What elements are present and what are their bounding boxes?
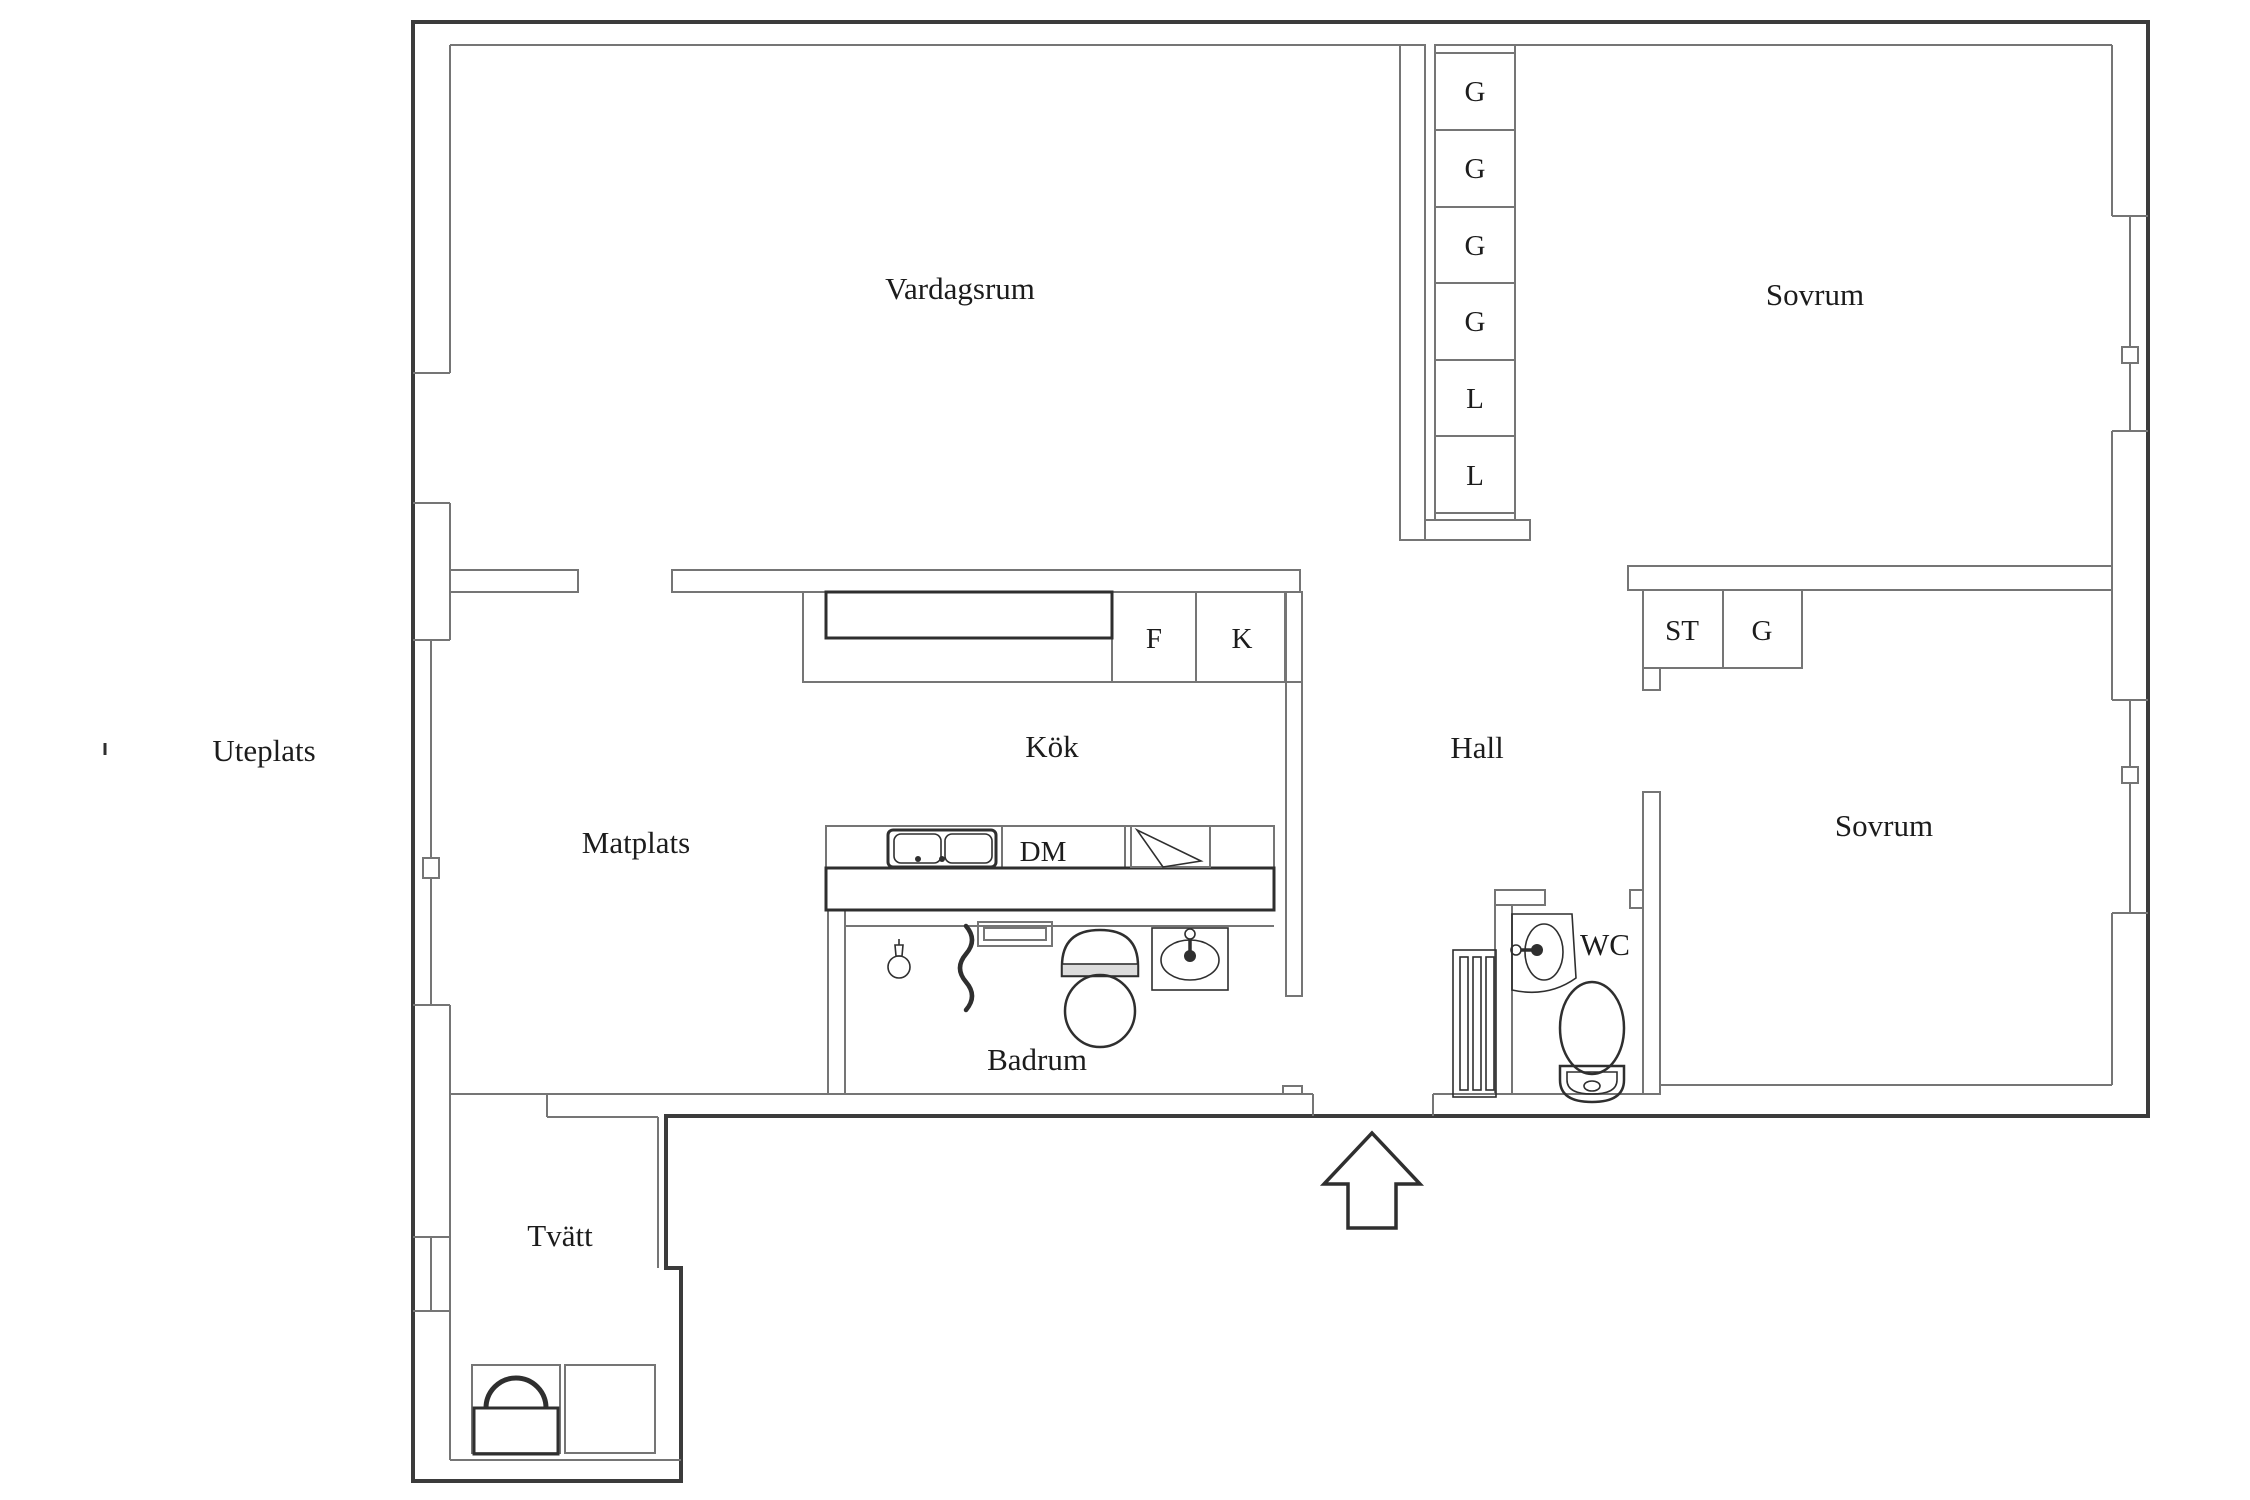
livingroom-right-wall [1400, 45, 1425, 540]
bathroom-fixtures [888, 922, 1228, 1047]
cabinet-label: L [1466, 383, 1484, 415]
windows [413, 216, 2148, 1311]
shower-curtain-icon [960, 926, 972, 1010]
lower-worktop [826, 868, 1274, 910]
room-label-sovrum-1: Sovrum [1766, 277, 1864, 312]
bedroom1-window [2112, 216, 2148, 431]
freezer-label: K [1232, 623, 1253, 655]
wc-left-wall [1495, 890, 1512, 1094]
hall-cabinets: ST G [1643, 590, 1802, 668]
fridge-label: F [1146, 623, 1162, 655]
tall-cabinet-column: G G G G L L [1435, 45, 1515, 520]
wc-door-jamb [1630, 890, 1643, 908]
building-outline [413, 22, 2148, 1481]
room-label-wc: WC [1580, 927, 1630, 962]
laundry-window [413, 1237, 450, 1311]
closet-bottom-wall [1425, 520, 1530, 540]
radiator-icon [1453, 950, 1496, 1097]
cabinet-label: L [1466, 460, 1484, 492]
wc-top-wall [1495, 890, 1545, 905]
room-labels: Vardagsrum Sovrum Kök Hall Matplats Sovr… [212, 271, 1933, 1253]
cabinet-label: ST [1665, 615, 1699, 647]
shower-head-icon [888, 939, 910, 978]
room-label-kok: Kök [1025, 729, 1079, 764]
floor-plan-page: G G G G L L ST G F K DM [0, 0, 2250, 1500]
entrance-arrow-icon [1324, 1133, 1420, 1228]
window-handle-icon [2122, 347, 2138, 363]
laundry-fixtures [472, 1365, 655, 1454]
kitchen-sink-icon [888, 830, 996, 867]
room-label-vardagsrum: Vardagsrum [885, 271, 1035, 306]
room-label-sovrum-2: Sovrum [1835, 808, 1933, 843]
room-label-hall: Hall [1450, 730, 1503, 765]
room-label-tvatt: Tvätt [527, 1218, 593, 1253]
cabinet-label: G [1752, 615, 1773, 647]
room-label-badrum: Badrum [987, 1042, 1087, 1077]
dishwasher-label: DM [1020, 836, 1067, 868]
window-handle-icon [2122, 767, 2138, 783]
kitchen-hall-wall [1286, 592, 1302, 996]
washing-machine-icon [474, 1378, 558, 1454]
partition-walls [450, 45, 2112, 1094]
bedroom2-wall-cap [1643, 668, 1660, 690]
cabinet-label: G [1465, 76, 1486, 108]
wc-toilet-icon [1560, 982, 1624, 1102]
matplats-wall [450, 570, 578, 592]
kitchen-top-wall [672, 570, 1300, 592]
badrum-door-jamb [1283, 1086, 1302, 1094]
window-handle-icon [423, 858, 439, 878]
bedroom2-left-wall [1643, 792, 1660, 1094]
outer-walls [413, 22, 2148, 1481]
bedroom2-window [2112, 700, 2148, 913]
badrum-left-wall [828, 910, 845, 1094]
upper-worktop [826, 592, 1112, 638]
stove-icon [1131, 826, 1210, 867]
floor-plan-canvas: G G G G L L ST G F K DM [0, 0, 2250, 1500]
cabinet-label: G [1465, 153, 1486, 185]
toilet-icon [1062, 930, 1138, 1047]
washbasin-icon [1152, 928, 1228, 990]
room-label-uteplats: Uteplats [212, 733, 315, 768]
wc-washbasin-icon [1511, 914, 1576, 992]
room-label-matplats: Matplats [582, 825, 691, 860]
cabinet-label: G [1465, 306, 1486, 338]
balcony-window [413, 640, 450, 1005]
bedroom1-bottom-wall [1628, 566, 2112, 590]
cabinet-label: G [1465, 230, 1486, 262]
